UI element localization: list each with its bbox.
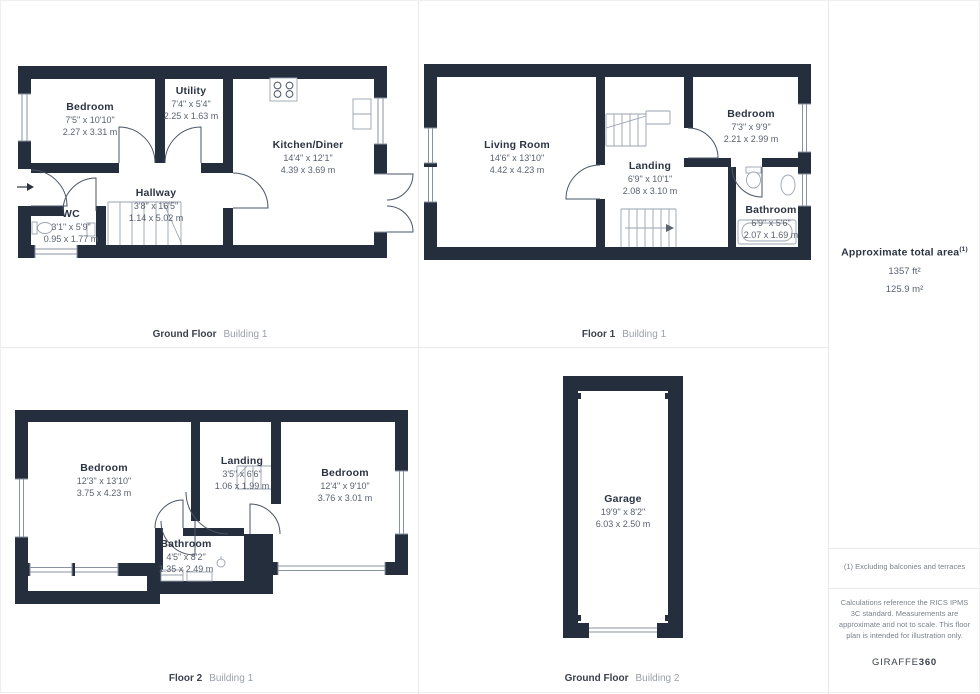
room-dim-imperial: 7'4" x 5'4" [164,98,219,110]
room-label-bedroom-left-floor2: Bedroom 12'3" x 13'10" 3.75 x 4.23 m [77,462,132,499]
floorplan-sheet: Bedroom 7'5" x 10'10" 2.27 x 3.31 m Util… [0,0,980,693]
caption-building: Building 2 [635,673,679,684]
total-area-footnote-marker: (1) [959,246,968,253]
caption-ground-floor-building2: Ground FloorBuilding 2 [565,672,680,685]
caption-building: Building 1 [209,673,253,684]
room-dim-metric: 1.14 x 5.02 m [129,212,184,224]
room-label-hallway: Hallway 3'8" x 16'5" 1.14 x 5.02 m [129,187,184,224]
caption-building: Building 1 [622,329,666,340]
divider-vertical-right [828,1,829,694]
giraffe360-logo: GIRAFFE360 [828,657,980,668]
room-label-kitchen-diner: Kitchen/Diner 14'4" x 12'1" 4.39 x 3.69 … [273,139,344,176]
total-area-imperial: 1357 ft² [828,266,980,277]
room-label-bedroom-right-floor2: Bedroom 12'4" x 9'10" 3.76 x 3.01 m [318,467,373,504]
room-dim-metric: 2.27 x 3.31 m [63,126,118,138]
divider-horizontal-main [1,347,828,348]
room-name: Bathroom [159,538,214,551]
room-dim-imperial: 14'4" x 12'1" [273,152,344,164]
room-label-bedroom-ground: Bedroom 7'5" x 10'10" 2.27 x 3.31 m [63,101,118,138]
room-name: Landing [215,455,270,468]
logo-brand-text: GIRAFFE [872,657,919,668]
stairs-down-group [621,209,676,247]
room-label-bedroom-floor1: Bedroom 7'3" x 9'9" 2.21 x 2.99 m [724,108,779,145]
room-dim-imperial: 7'5" x 10'10" [63,114,118,126]
room-name: Hallway [129,187,184,200]
room-dim-metric: 2.07 x 1.69 m [744,229,799,241]
room-dim-imperial: 19'9" x 8'2" [596,506,651,518]
room-dim-metric: 2.08 x 3.10 m [623,185,678,197]
room-dim-imperial: 12'4" x 9'10" [318,480,373,492]
room-dim-imperial: 3'1" x 5'9" [44,221,99,233]
room-name: Living Room [484,139,550,152]
room-name: Bathroom [744,204,799,217]
room-name: Kitchen/Diner [273,139,344,152]
room-name: Utility [164,85,219,98]
room-dim-metric: 6.03 x 2.50 m [596,518,651,530]
room-label-bathroom-floor1: Bathroom 6'9" x 5'6" 2.07 x 1.69 m [744,204,799,241]
footnote-exclusions: (1) Excluding balconies and terraces [828,562,980,572]
room-label-garage: Garage 19'9" x 8'2" 6.03 x 2.50 m [596,493,651,530]
total-area-title: Approximate total area(1) [828,246,980,259]
room-name: Landing [623,160,678,173]
caption-ground-floor-building1: Ground FloorBuilding 1 [153,328,268,341]
caption-floor: Floor 1 [582,329,615,340]
room-name: WC [44,208,99,221]
room-dim-metric: 2.21 x 2.99 m [724,133,779,145]
room-name: Garage [596,493,651,506]
room-dim-metric: 1.06 x 1.99 m [215,480,270,492]
room-dim-metric: 4.39 x 3.69 m [273,164,344,176]
caption-floor1-building1: Floor 1Building 1 [582,328,666,341]
room-dim-imperial: 4'5" x 8'2" [159,551,214,563]
room-label-landing-floor1: Landing 6'9" x 10'1" 2.08 x 3.10 m [623,160,678,197]
footnote-disclaimer: Calculations reference the RICS IPMS 3C … [828,597,980,641]
room-label-bathroom-floor2: Bathroom 4'5" x 8'2" 1.35 x 2.49 m [159,538,214,575]
caption-building: Building 1 [223,329,267,340]
divider-note-top [828,548,980,549]
room-dim-metric: 2.25 x 1.63 m [164,110,219,122]
room-dim-imperial: 12'3" x 13'10" [77,475,132,487]
room-dim-imperial: 6'9" x 5'6" [744,217,799,229]
divider-note-bottom [828,588,980,589]
room-dim-metric: 4.42 x 4.23 m [484,164,550,176]
garage-door-icon [589,628,657,632]
total-area-summary: Approximate total area(1) 1357 ft² 125.9… [828,246,980,295]
kitchen-hob-icon [270,78,297,101]
total-area-metric: 125.9 m² [828,284,980,295]
room-name: Bedroom [63,101,118,114]
room-dim-metric: 3.75 x 4.23 m [77,487,132,499]
room-name: Bedroom [724,108,779,121]
room-dim-metric: 3.76 x 3.01 m [318,492,373,504]
caption-floor: Ground Floor [565,673,629,684]
room-dim-imperial: 3'8" x 16'5" [129,200,184,212]
room-label-landing-floor2: Landing 3'5" x 6'6" 1.06 x 1.99 m [215,455,270,492]
room-dim-metric: 0.95 x 1.77 m [44,233,99,245]
room-name: Bedroom [318,467,373,480]
room-label-wc: WC 3'1" x 5'9" 0.95 x 1.77 m [44,208,99,245]
room-label-utility: Utility 7'4" x 5'4" 2.25 x 1.63 m [164,85,219,122]
logo-suffix-text: 360 [919,657,937,668]
room-dim-imperial: 3'5" x 6'6" [215,468,270,480]
room-dim-metric: 1.35 x 2.49 m [159,563,214,575]
kitchen-counter-icon [353,99,371,129]
room-name: Bedroom [77,462,132,475]
room-dim-imperial: 7'3" x 9'9" [724,121,779,133]
room-dim-imperial: 14'6" x 13'10" [484,152,550,164]
stairs-up-group [606,111,670,146]
caption-floor: Floor 2 [169,673,202,684]
caption-floor2-building1: Floor 2Building 1 [169,672,253,685]
room-dim-imperial: 6'9" x 10'1" [623,173,678,185]
caption-floor: Ground Floor [153,329,217,340]
room-label-living-room: Living Room 14'6" x 13'10" 4.42 x 4.23 m [484,139,550,176]
